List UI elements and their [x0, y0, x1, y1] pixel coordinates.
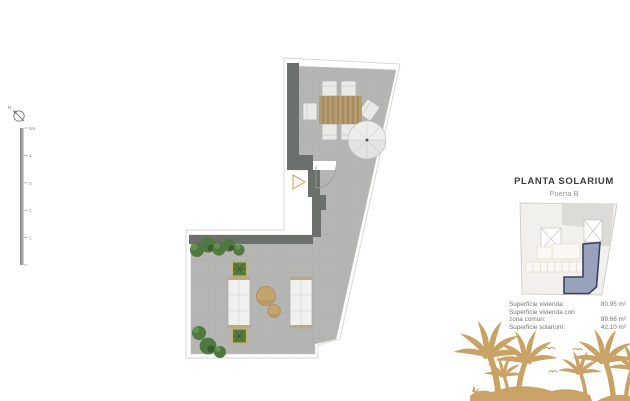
scale-bar: 5m 4 3 2 1	[20, 126, 36, 265]
chair	[341, 81, 356, 96]
sun-lounger	[228, 277, 250, 328]
area-label: zona comun:	[509, 316, 546, 324]
area-row: Superficie vivienda: 80.95 m²	[509, 301, 626, 309]
planter	[233, 329, 247, 343]
planter	[233, 262, 247, 276]
area-value: 89.66 m²	[601, 316, 626, 324]
wall-stair-step-2	[312, 195, 326, 210]
compass-north-label: N	[8, 105, 11, 110]
chair	[303, 103, 317, 120]
scale-label-4: 4	[29, 153, 32, 158]
area-value: 80.95 m²	[601, 301, 626, 309]
area-row: zona comun: 89.66 m²	[509, 316, 626, 324]
north-compass-icon: N	[8, 105, 24, 121]
area-value: 42.10 m²	[601, 324, 626, 332]
area-row: Superficie vivienda con	[509, 309, 626, 317]
chair	[322, 81, 337, 96]
dining-table	[319, 96, 362, 124]
page-subtitle: Puerta B	[498, 189, 630, 198]
scale-label-3: 3	[29, 181, 32, 186]
page-title: PLANTA SOLARIUM	[498, 176, 630, 187]
chair	[322, 124, 337, 140]
area-table: Superficie vivienda: 80.95 m² Superficie…	[509, 301, 626, 331]
wall-stair-step-1	[308, 170, 320, 197]
scale-label-1: 1	[29, 236, 32, 241]
plan-drawing: N 5m 4 3 2 1	[0, 0, 630, 401]
floorplan-page: N 5m 4 3 2 1	[0, 0, 630, 401]
scale-label-5m: 5m	[29, 126, 36, 131]
key-plan-lightwell	[584, 220, 602, 242]
area-row: Superficie solarium: 42.10 m²	[509, 324, 626, 332]
area-label: Superficie vivienda con	[509, 309, 575, 317]
area-label: Superficie vivienda:	[509, 301, 564, 309]
palm-trees-illustration	[453, 320, 630, 401]
title-block: PLANTA SOLARIUM Puerta B	[498, 176, 630, 198]
sun-lounger	[290, 277, 312, 328]
wall-stair-step-3	[312, 208, 321, 237]
area-label: Superficie solarium:	[509, 324, 565, 332]
main-floorplan	[186, 58, 400, 358]
scale-label-2: 2	[29, 208, 32, 213]
key-plan	[520, 203, 617, 295]
parasol	[348, 121, 386, 159]
beach-mound	[470, 386, 592, 401]
